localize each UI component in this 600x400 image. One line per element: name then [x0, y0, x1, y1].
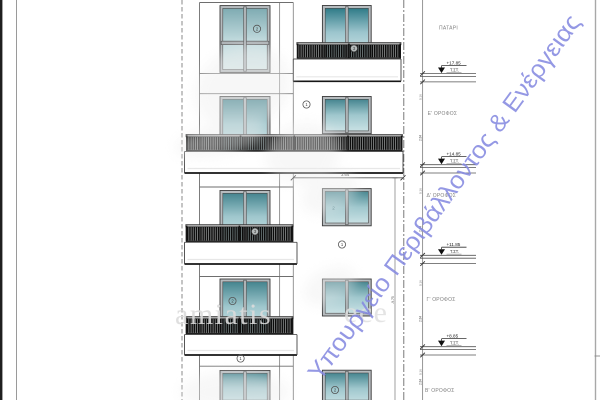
svg-text:2.84: 2.84: [418, 379, 422, 385]
svg-text:+17.85: +17.85: [447, 60, 462, 65]
svg-text:0.16: 0.16: [418, 188, 422, 194]
svg-text:ΠΑΤΑΡΙ: ΠΑΤΑΡΙ: [439, 26, 458, 32]
svg-text:0.16: 0.16: [418, 369, 422, 375]
svg-text:2.84: 2.84: [418, 135, 422, 141]
svg-text:0.16: 0.16: [418, 280, 422, 286]
svg-text:Γ' ΟΡΟΦΟΣ: Γ' ΟΡΟΦΟΣ: [427, 297, 456, 303]
svg-text:Β' ΟΡΟΦΟΣ: Β' ΟΡΟΦΟΣ: [425, 388, 455, 394]
svg-text:Τ.ΣΤ.: Τ.ΣΤ.: [450, 340, 459, 345]
svg-text:+8.85: +8.85: [447, 333, 459, 338]
svg-text:Τ.ΣΤ.: Τ.ΣΤ.: [450, 249, 459, 254]
svg-text:amiatis: amiatis: [175, 298, 272, 331]
svg-text:0.16: 0.16: [418, 94, 422, 100]
svg-text:Τ.ΣΤ.: Τ.ΣΤ.: [450, 67, 459, 72]
svg-text:+11.85: +11.85: [447, 242, 461, 247]
svg-text:Ε' ΟΡΟΦΟΣ: Ε' ΟΡΟΦΟΣ: [428, 111, 458, 117]
svg-text:2.84: 2.84: [418, 316, 422, 322]
svg-text:-9.75: -9.75: [391, 296, 395, 304]
